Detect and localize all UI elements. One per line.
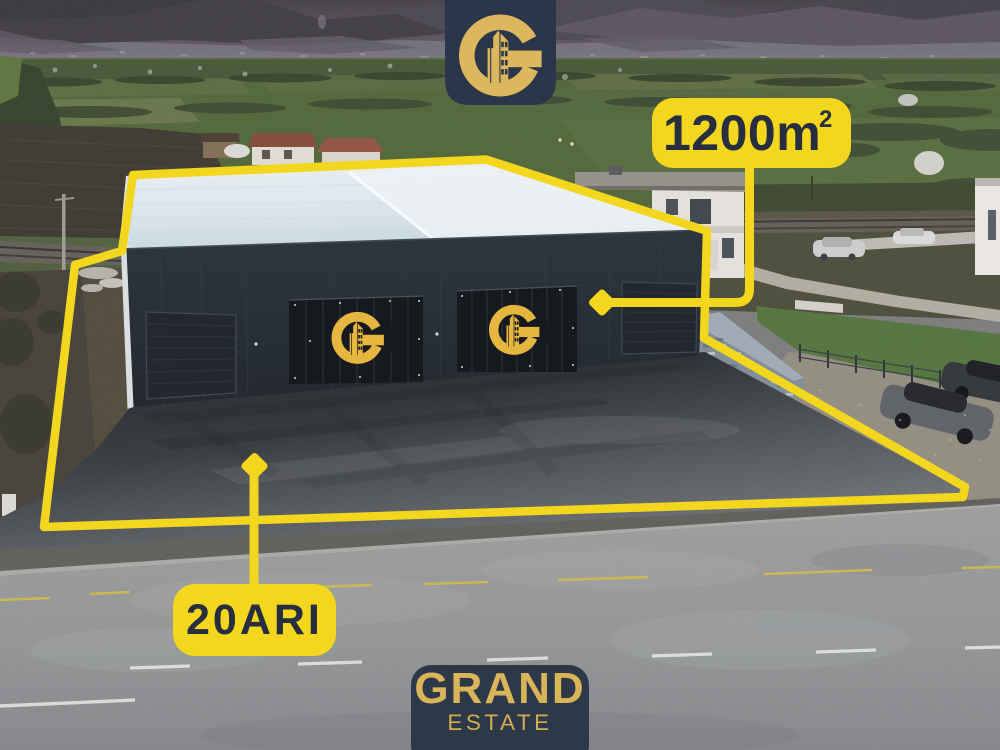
svg-text:20ARI: 20ARI bbox=[186, 596, 323, 644]
svg-text:2: 2 bbox=[819, 106, 832, 133]
svg-text:1200m: 1200m bbox=[663, 105, 821, 161]
svg-text:ESTATE: ESTATE bbox=[447, 710, 552, 735]
svg-text:GRAND: GRAND bbox=[414, 664, 585, 713]
